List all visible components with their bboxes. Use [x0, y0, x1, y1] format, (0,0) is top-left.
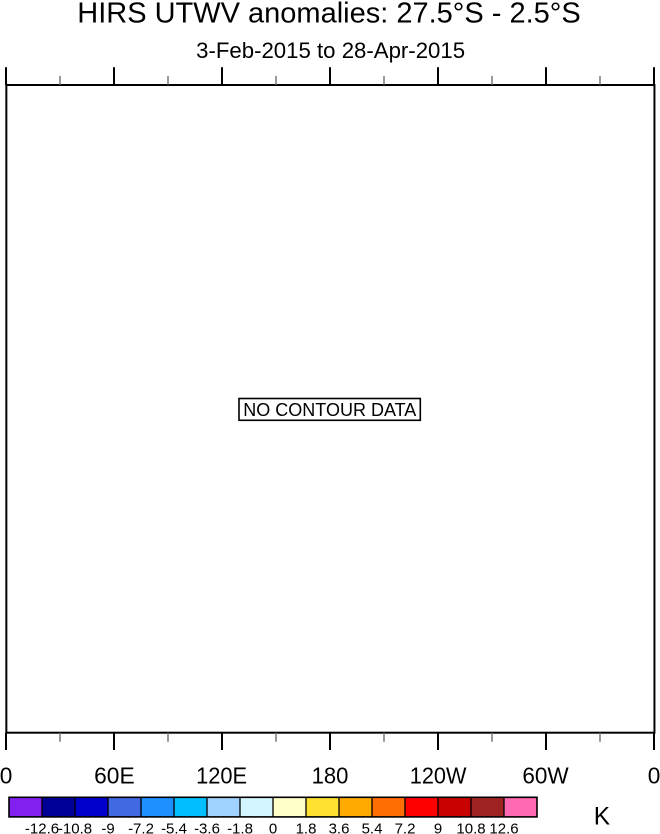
- svg-text:-10.8: -10.8: [58, 821, 92, 834]
- svg-text:3-Feb-2015 to 28-Apr-2015: 3-Feb-2015 to 28-Apr-2015: [196, 38, 465, 63]
- svg-text:120W: 120W: [410, 762, 467, 788]
- svg-text:1.8: 1.8: [296, 821, 317, 834]
- svg-text:120E: 120E: [196, 762, 247, 788]
- svg-text:-12.6: -12.6: [25, 821, 59, 834]
- svg-text:K: K: [594, 803, 611, 831]
- svg-text:60E: 60E: [94, 762, 135, 788]
- svg-text:12.6: 12.6: [489, 821, 518, 834]
- svg-text:0: 0: [0, 762, 12, 788]
- svg-text:-7.2: -7.2: [128, 821, 154, 834]
- svg-text:3.6: 3.6: [329, 821, 350, 834]
- svg-text:60W: 60W: [522, 762, 569, 788]
- svg-text:0: 0: [269, 821, 277, 834]
- svg-text:-1.8: -1.8: [227, 821, 253, 834]
- svg-text:5.4: 5.4: [362, 821, 383, 834]
- svg-text:NO CONTOUR DATA: NO CONTOUR DATA: [243, 400, 416, 420]
- svg-text:-9: -9: [101, 821, 114, 834]
- svg-text:0: 0: [648, 762, 660, 788]
- svg-text:-3.6: -3.6: [194, 821, 220, 834]
- svg-text:180: 180: [312, 762, 349, 788]
- svg-text:10.8: 10.8: [456, 821, 485, 834]
- svg-text:-5.4: -5.4: [161, 821, 187, 834]
- svg-text:HIRS UTWV anomalies: 27.5°S -: HIRS UTWV anomalies: 27.5°S - 2.5°S: [77, 0, 580, 30]
- svg-text:9: 9: [434, 821, 442, 834]
- svg-text:7.2: 7.2: [395, 821, 416, 834]
